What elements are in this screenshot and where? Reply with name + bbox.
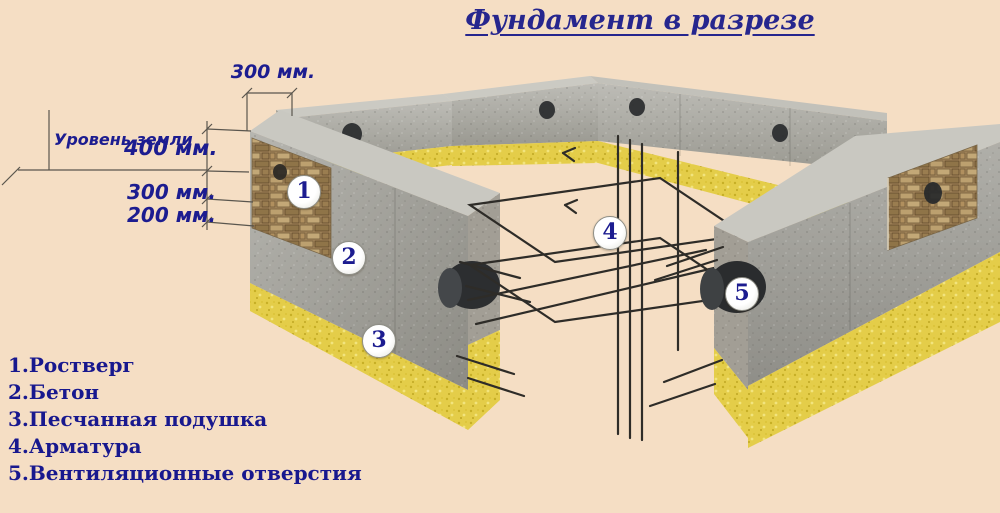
dimension-label-sand-layer: 200 мм. bbox=[127, 203, 216, 227]
legend-item-rostverk: 1.Ростверг bbox=[8, 352, 362, 379]
callout-5-vent-hole: 5 bbox=[725, 277, 759, 311]
page-title: Фундамент в разрезе bbox=[450, 5, 830, 36]
vent-hole bbox=[924, 182, 942, 204]
callout-4-rebar: 4 bbox=[593, 216, 627, 250]
legend-item-sand-cushion: 3.Песчанная подушка bbox=[8, 406, 362, 433]
vent-hole bbox=[539, 101, 555, 119]
vent-hole bbox=[629, 98, 645, 116]
legend-item-rebar: 4.Арматура bbox=[8, 433, 362, 460]
legend: 1.Ростверг 2.Бетон 3.Песчанная подушка 4… bbox=[8, 352, 362, 487]
legend-item-vent-holes: 5.Вентиляционные отверстия bbox=[8, 460, 362, 487]
dimension-label-above-ground: 400 мм. bbox=[124, 136, 217, 160]
callout-2-concrete: 2 bbox=[332, 241, 366, 275]
callout-1-rostverk: 1 bbox=[287, 175, 321, 209]
legend-item-concrete: 2.Бетон bbox=[8, 379, 362, 406]
callout-3-sand-cushion: 3 bbox=[362, 324, 396, 358]
dimension-label-wall-top-width: 300 мм. bbox=[228, 61, 318, 83]
vent-hole bbox=[273, 164, 287, 180]
vent-hole bbox=[772, 124, 788, 142]
foundation-cross-section-diagram: Фундамент в разрезе 300 мм. Уровень земл… bbox=[0, 0, 1000, 513]
dimension-label-concrete-depth: 300 мм. bbox=[127, 180, 216, 204]
